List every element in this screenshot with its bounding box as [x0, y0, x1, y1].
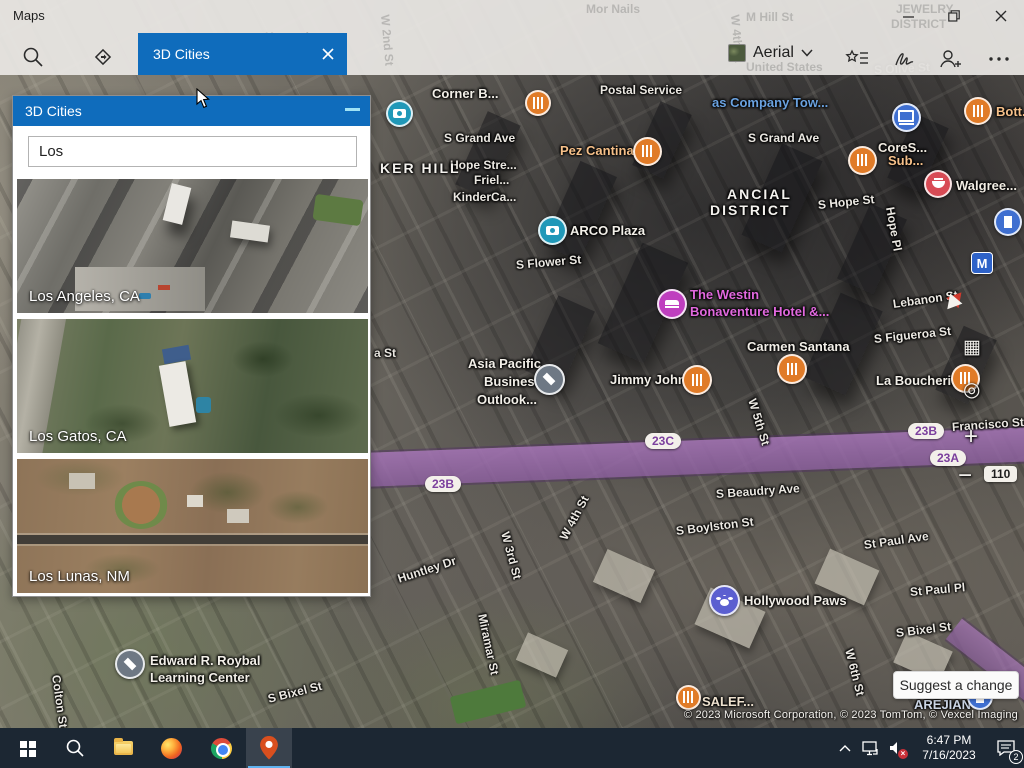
district-label: KER HILL — [380, 160, 461, 176]
poi-label: Corner B... — [432, 86, 498, 101]
map-copyright: © 2023 Microsoft Corporation, © 2023 Tom… — [684, 709, 1018, 721]
city-card-los-angeles[interactable]: Los Angeles, CA — [17, 179, 368, 313]
building-poi-icon[interactable] — [994, 208, 1022, 236]
poi-label: Hollywood Paws — [744, 593, 847, 608]
poi-label: Sub... — [888, 153, 923, 168]
mute-badge-icon: × — [898, 749, 908, 759]
map-style-selector[interactable]: Aerial — [728, 44, 813, 62]
highway-shield: 23B — [425, 476, 461, 492]
chevron-up-icon — [839, 745, 851, 752]
mouse-cursor — [196, 88, 211, 114]
poi-label: Edward R. Roybal — [150, 653, 261, 668]
highway-shield: 23C — [645, 433, 681, 449]
star-list-icon — [845, 49, 869, 69]
windows-logo-icon — [20, 741, 27, 748]
street-label: Friel... — [474, 173, 509, 187]
person-add-icon — [938, 48, 962, 70]
window-restore-button[interactable] — [939, 5, 969, 27]
street-label: a St — [374, 346, 396, 360]
poi-label: Learning Center — [150, 670, 250, 685]
poi-label: Bott... — [996, 104, 1024, 119]
faded-map-label: United States — [746, 60, 823, 74]
restaurant-poi-icon[interactable] — [964, 97, 992, 125]
window-minimize-button[interactable] — [893, 5, 923, 27]
restaurant-poi-icon[interactable] — [848, 146, 877, 175]
directions-button[interactable] — [86, 40, 120, 74]
city-card-label: Los Angeles, CA — [29, 288, 140, 305]
clock-time: 6:47 PM — [910, 733, 988, 748]
maps-app-window: Postal ServiceS Olive StS Grand AveS Gra… — [0, 0, 1024, 768]
street-label: Postal Service — [600, 83, 682, 97]
map-pin-icon — [260, 736, 278, 760]
faded-map-label: M Hill St — [746, 10, 793, 24]
restaurant-poi-icon[interactable] — [525, 90, 551, 116]
city-card-los-lunas[interactable]: Los Lunas, NM — [17, 459, 368, 593]
chrome-icon — [211, 738, 232, 759]
firefox-button[interactable] — [148, 728, 194, 768]
poi-label: La Boucherie — [876, 373, 958, 388]
tray-expand-button[interactable] — [832, 728, 858, 768]
zoom-in-button[interactable]: + — [964, 425, 978, 449]
map-style-thumbnail — [728, 44, 746, 62]
search-button[interactable] — [16, 40, 50, 74]
poi-label: as Company Tow... — [712, 95, 828, 110]
street-label: S Grand Ave — [444, 131, 515, 145]
tab-close-button[interactable] — [320, 46, 336, 62]
3d-cities-panel: 3D Cities Los Angeles, CA Los Gatos, CA — [12, 95, 371, 597]
notification-count-badge: 2 — [1009, 750, 1023, 764]
volume-tray-icon[interactable]: × — [884, 728, 910, 768]
poi-label: Asia Pacific — [468, 356, 541, 371]
poi-label: The Westin — [690, 287, 759, 302]
close-icon — [320, 46, 336, 62]
search-icon — [22, 46, 44, 68]
start-button[interactable] — [4, 728, 50, 768]
faded-map-label: Mor Nails — [586, 2, 640, 16]
faded-map-label: W 2nd St — [378, 14, 396, 66]
school-poi-icon[interactable] — [115, 649, 145, 679]
highway-shield: 23B — [908, 423, 944, 439]
locate-icon: ◎ — [963, 379, 980, 401]
action-center-button[interactable]: 2 — [988, 728, 1024, 768]
restaurant-poi-icon[interactable] — [682, 365, 712, 395]
laptop-poi-icon[interactable] — [892, 103, 921, 132]
folder-icon — [114, 741, 133, 755]
app-top-bar: KennethW 2nd StMor NailsW 4th StM Hill S… — [0, 0, 1024, 75]
minus-icon: − — [958, 462, 972, 489]
tab-label: 3D Cities — [153, 46, 210, 62]
tilt-grid-button[interactable]: ▦ — [963, 338, 981, 357]
poi-label: Carmen Santana — [747, 339, 850, 354]
map-style-label: Aerial — [753, 44, 794, 62]
directions-icon — [91, 45, 115, 69]
street-label: S Grand Ave — [748, 131, 819, 145]
firefox-icon — [161, 738, 182, 759]
ink-pen-icon — [893, 49, 917, 69]
tab-3d-cities[interactable]: 3D Cities — [138, 33, 347, 75]
panel-minimize-button[interactable] — [345, 108, 360, 111]
add-person-button[interactable] — [933, 42, 967, 76]
file-explorer-button[interactable] — [100, 728, 146, 768]
bowl-poi-icon[interactable] — [924, 170, 952, 198]
metro-poi-icon[interactable] — [971, 252, 993, 274]
zoom-out-button[interactable]: − — [958, 464, 972, 488]
ellipsis-icon — [988, 56, 1010, 62]
maps-app-button[interactable] — [246, 728, 292, 768]
camera-poi-icon[interactable] — [538, 216, 567, 245]
clock-date: 7/16/2023 — [910, 748, 988, 763]
plus-icon: + — [964, 423, 978, 450]
street-label: KinderCa... — [453, 190, 516, 204]
locate-me-button[interactable]: ◎ — [963, 380, 980, 400]
school-poi-icon[interactable] — [534, 364, 565, 395]
taskbar-clock[interactable]: 6:47 PM 7/16/2023 — [910, 733, 988, 763]
network-tray-icon[interactable] — [858, 728, 884, 768]
restore-icon — [948, 10, 960, 22]
close-icon — [995, 10, 1007, 22]
taskbar-search-button[interactable] — [52, 728, 98, 768]
hotel-poi-icon[interactable] — [657, 289, 687, 319]
network-icon — [862, 741, 880, 756]
city-card-label: Los Lunas, NM — [29, 568, 130, 585]
poi-label: Walgree... — [956, 178, 1017, 193]
search-icon — [65, 738, 85, 758]
restaurant-poi-icon[interactable] — [633, 137, 662, 166]
chevron-down-icon — [801, 49, 813, 57]
district-label: ANCIAL — [727, 186, 792, 202]
restaurant-poi-icon[interactable] — [777, 354, 807, 384]
grid-icon: ▦ — [963, 337, 981, 358]
app-title: Maps — [13, 8, 45, 23]
suggest-a-change-button[interactable]: Suggest a change — [893, 671, 1019, 699]
favorites-button[interactable] — [840, 42, 874, 76]
highway-shield: 110 — [984, 466, 1017, 482]
city-card-label: Los Gatos, CA — [29, 428, 127, 445]
ink-button[interactable] — [888, 42, 922, 76]
poi-label: SALEF... — [702, 694, 754, 709]
poi-label: ARCO Plaza — [570, 223, 645, 238]
panel-title: 3D Cities — [25, 103, 82, 119]
city-card-los-gatos[interactable]: Los Gatos, CA — [17, 319, 368, 453]
poi-label: Pez Cantina — [560, 143, 634, 158]
district-label: DISTRICT — [710, 202, 791, 218]
camera-poi-icon[interactable] — [386, 100, 413, 127]
more-options-button[interactable] — [982, 42, 1016, 76]
city-search-input[interactable] — [28, 136, 357, 167]
restaurant-poi-icon[interactable] — [676, 685, 701, 710]
minimize-icon — [903, 11, 914, 22]
window-close-button[interactable] — [986, 5, 1016, 27]
poi-label: Outlook... — [477, 392, 537, 407]
chrome-button[interactable] — [198, 728, 244, 768]
paw-poi-icon[interactable] — [709, 585, 740, 616]
windows-taskbar: × 6:47 PM 7/16/2023 2 — [0, 728, 1024, 768]
panel-header[interactable]: 3D Cities — [13, 96, 370, 126]
poi-label: Bonaventure Hotel &... — [690, 304, 829, 319]
